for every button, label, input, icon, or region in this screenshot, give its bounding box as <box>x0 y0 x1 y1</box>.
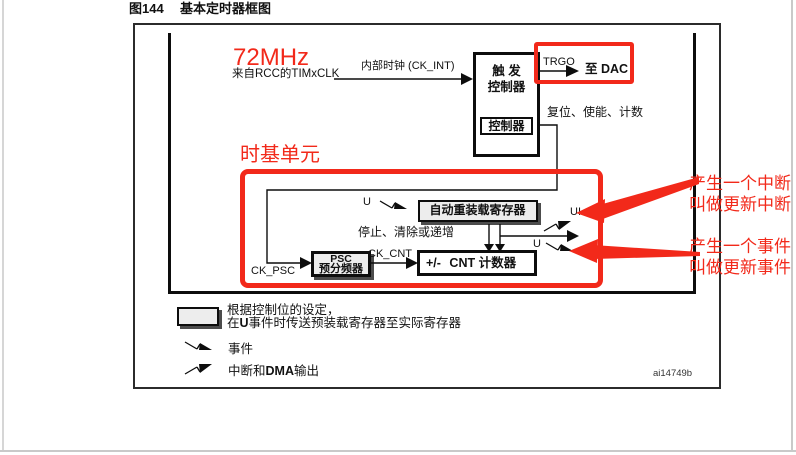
control-signals-label: 复位、使能、计数 <box>547 106 643 120</box>
update-event-note-line2: 叫做更新事件 <box>689 257 796 278</box>
page-border-right <box>791 0 793 451</box>
time-base-unit-annotation: 时基单元 <box>240 144 320 167</box>
internal-clock-label: 内部时钟 (CK_INT) <box>361 60 455 73</box>
update-event-note: 产生一个事件 叫做更新事件 <box>689 236 796 278</box>
controller-box: 控制器 <box>480 117 533 135</box>
legend-interrupt-pre: 中断和 <box>228 364 266 378</box>
legend-preload-box <box>177 307 219 326</box>
legend-preload-line2-bold: U <box>240 316 249 330</box>
diagram-frame-left <box>168 33 171 292</box>
legend-event-label: 事件 <box>228 342 253 356</box>
clock-freq-annotation: 72MHz <box>233 44 309 72</box>
trigger-controller-label-line1: 触 发 <box>476 64 537 78</box>
update-event-note-line1: 产生一个事件 <box>689 236 796 257</box>
update-interrupt-note-line2: 叫做更新中断 <box>689 194 796 215</box>
legend-interrupt-label: 中断和DMA输出 <box>228 364 319 378</box>
legend-preload-line2-pre: 在 <box>227 316 240 330</box>
legend-interrupt-bold: DMA <box>266 364 294 378</box>
legend-preload-line2: 在U事件时传送预装载寄存器至实际寄存器 <box>227 316 461 330</box>
update-interrupt-note: 产生一个中断 叫做更新中断 <box>689 173 796 215</box>
time-base-unit-highlight-rect <box>240 169 603 288</box>
legend-preload-line2-post: 事件时传送预装载寄存器至实际寄存器 <box>249 316 462 330</box>
trgo-dac-highlight-rect <box>534 42 634 84</box>
controller-label: 控制器 <box>482 120 531 134</box>
figure-title: 基本定时器框图 <box>180 2 271 17</box>
legend-interrupt-post: 输出 <box>294 364 319 378</box>
page-border-left <box>2 0 4 451</box>
page-border-bottom <box>0 450 796 452</box>
document-page: 图144 基本定时器框图 触 发 控制器 控制器 自动重装载寄存器 PSC 预分… <box>0 0 796 455</box>
figure-label: 图144 <box>129 2 164 17</box>
trigger-controller-box: 触 发 控制器 控制器 <box>473 52 540 157</box>
trigger-controller-label-line2: 控制器 <box>476 80 537 94</box>
update-interrupt-note-line1: 产生一个中断 <box>689 173 796 194</box>
diagram-frame-bottom <box>168 291 696 294</box>
figure-id: ai14749b <box>653 369 692 380</box>
